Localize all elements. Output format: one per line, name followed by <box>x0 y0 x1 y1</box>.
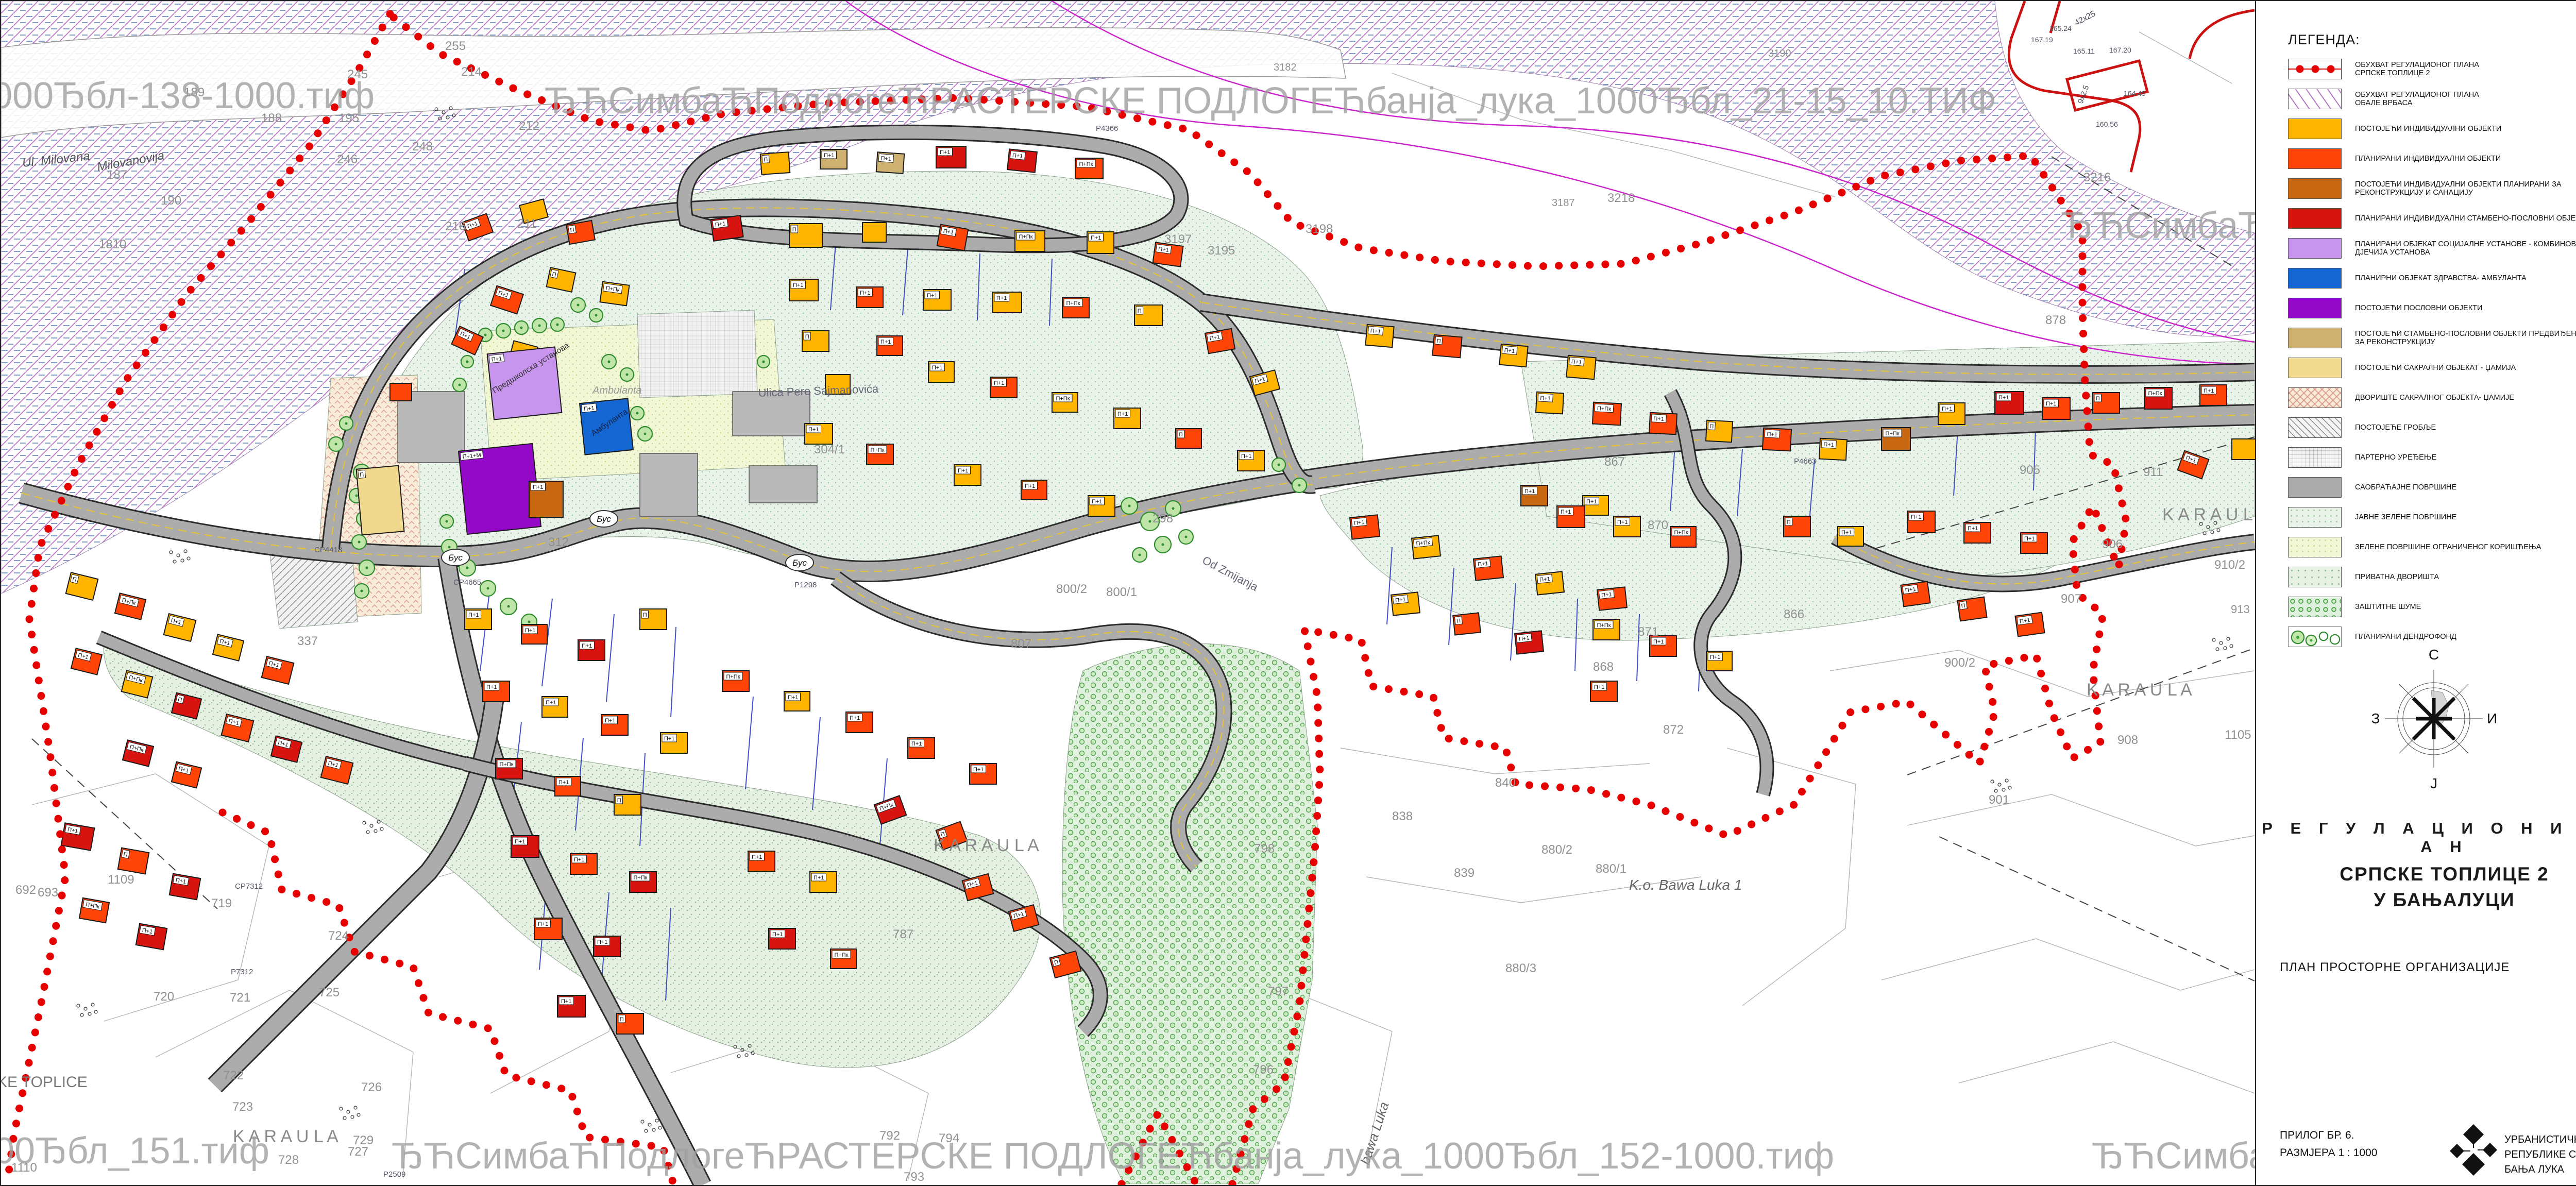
svg-text:П+1: П+1 <box>1942 406 1952 412</box>
svg-text:839: 839 <box>1454 866 1475 880</box>
legend-label: ОБУХВАТ РЕГУЛАЦИОНОГ ПЛАНАСРПСКЕ ТОПЛИЦЕ… <box>2355 61 2479 78</box>
svg-text:П+1: П+1 <box>1504 347 1515 354</box>
building-p: П+Пк <box>1062 297 1089 318</box>
legend-label: ПЛАНИРНИ ОБЈЕКАТ ЗДРАВСТВА- АМБУЛАНТА <box>2355 274 2527 283</box>
org-line3: БАЊА ЛУКА <box>2504 1162 2576 1177</box>
building-e: П+Пк <box>1412 535 1440 558</box>
legend-symbol-parter <box>2288 447 2342 468</box>
building-p: П+1 <box>1557 506 1585 528</box>
svg-text:1810: 1810 <box>99 238 126 251</box>
legend-symbol-business <box>2288 298 2342 318</box>
building-e: П+1 <box>784 691 810 711</box>
svg-text:693: 693 <box>38 886 58 900</box>
svg-text:П+1: П+1 <box>940 149 950 156</box>
svg-text:П+1: П+1 <box>927 293 937 299</box>
legend-label: ПРИВАТНА ДВОРИШТА <box>2355 573 2439 582</box>
svg-text:П+1: П+1 <box>561 998 571 1005</box>
legend-label: ПОСТОЈЕЋИ ПОСЛОВНИ ОБЈЕКТИ <box>2355 304 2482 313</box>
svg-text:3197: 3197 <box>1164 232 1192 246</box>
svg-text:P1298: P1298 <box>794 581 817 589</box>
building-e: П <box>760 152 790 175</box>
legend-label: ПЛАНИРАНИ ДЕНДРОФОНД <box>2355 633 2456 641</box>
svg-text:807: 807 <box>1011 637 1031 651</box>
legend-symbol-grave <box>2288 417 2342 438</box>
svg-text:П: П <box>805 334 809 340</box>
svg-text:П+1: П+1 <box>1968 526 1978 532</box>
building-e: П+1 <box>1114 408 1141 429</box>
svg-text:П: П <box>617 798 621 804</box>
legend-label: ЗЕЛЕНЕ ПОВРШИНЕ ОГРАНИЧЕНОГ КОРИШЋЕЊА <box>2355 543 2541 552</box>
svg-text:П+1: П+1 <box>850 715 860 721</box>
svg-text:298: 298 <box>1153 512 1173 526</box>
legend-symbol-traffic <box>2288 477 2342 498</box>
svg-text:П+1: П+1 <box>1519 635 1530 642</box>
building-e: П+1 <box>993 292 1022 313</box>
building-p: П <box>1784 516 1810 537</box>
building-p: П+1 <box>1650 636 1676 656</box>
legend-symbol-forest <box>2288 597 2342 617</box>
building-e: П+1 <box>1614 516 1640 537</box>
legend-symbol-pale <box>2288 537 2342 557</box>
svg-text:211: 211 <box>517 217 537 231</box>
building-p: П+1 <box>521 624 547 644</box>
svg-text:840: 840 <box>1495 776 1516 790</box>
svg-text:П+Пк: П+Пк <box>499 761 513 768</box>
legend-symbol-dendro <box>2288 626 2342 647</box>
svg-text:216: 216 <box>445 219 466 233</box>
legend-item-7: ПЛАНИРНИ ОБЈЕКАТ ЗДРАВСТВА- АМБУЛАНТА <box>2288 268 2576 289</box>
building-p: П+1 <box>937 225 968 251</box>
svg-text:П+1: П+1 <box>880 339 891 345</box>
svg-text:П: П <box>1179 432 1183 438</box>
svg-text:П+1: П+1 <box>558 780 569 786</box>
building-p: П+1 <box>970 764 996 784</box>
building-p: П+1 <box>1350 515 1380 539</box>
svg-text:П+1: П+1 <box>1586 499 1597 505</box>
svg-text:721: 721 <box>230 991 250 1005</box>
svg-text:167.19: 167.19 <box>2031 36 2053 44</box>
building-p: П <box>1432 335 1462 358</box>
building-p: П+1 <box>555 776 581 796</box>
svg-text:000Ђбл-138-1000.тиф: 000Ђбл-138-1000.тиф <box>1 75 375 116</box>
svg-text:П+Пк: П+Пк <box>1019 234 1032 240</box>
building-b: П+1 <box>710 215 743 241</box>
building-p: П+1 <box>1649 413 1677 435</box>
svg-text:П+1: П+1 <box>1594 684 1604 690</box>
building-b: П+Пк <box>496 758 522 779</box>
svg-text:726: 726 <box>361 1080 382 1094</box>
building-e: П <box>614 794 641 815</box>
svg-text:165.11: 165.11 <box>2073 47 2095 55</box>
svg-text:787: 787 <box>893 927 913 941</box>
svg-text:880/2: 880/2 <box>1541 843 1572 857</box>
building-e: П+1 <box>465 609 492 630</box>
svg-text:П+1: П+1 <box>1395 597 1406 604</box>
svg-text:723: 723 <box>232 1100 253 1114</box>
svg-text:П+1: П+1 <box>525 628 535 634</box>
building-p: П+1 <box>877 336 903 355</box>
svg-text:П+1: П+1 <box>1653 416 1664 422</box>
building-t: П+1 <box>876 152 905 174</box>
svg-text:880/1: 880/1 <box>1596 862 1626 876</box>
legend-symbol-existing <box>2288 118 2342 139</box>
building-e: П+1 <box>1499 344 1528 367</box>
building-p: П <box>566 221 595 244</box>
org-line2: РЕПУБЛИКЕ СРПСКЕ,а.д. <box>2504 1147 2576 1162</box>
svg-text:П+1: П+1 <box>1561 509 1571 515</box>
legend-item-3: ПЛАНИРАНИ ИНДИВИДУАЛНИ ОБЈЕКТИ <box>2288 148 2576 169</box>
svg-text:164.49: 164.49 <box>2124 89 2146 97</box>
svg-text:П+1: П+1 <box>772 931 783 938</box>
svg-text:П+1: П+1 <box>1539 576 1551 583</box>
svg-text:CP7312: CP7312 <box>235 882 263 891</box>
svg-text:871: 871 <box>1638 625 1658 639</box>
building-p: П+1 <box>1590 681 1617 702</box>
plan-sheet: ПП+1П+1П+1П+1П+ПкП+1ПП+1П+ПкП+1П+1П+1ПП+… <box>0 0 2576 1186</box>
svg-text:П+1: П+1 <box>824 153 834 159</box>
legend-item-16: ЗЕЛЕНЕ ПОВРШИНЕ ОГРАНИЧЕНОГ КОРИШЋЕЊА <box>2288 537 2576 557</box>
svg-text:870: 870 <box>1648 518 1668 532</box>
compass-south: J <box>2430 775 2437 791</box>
building-e: П+1 <box>1535 571 1564 595</box>
svg-text:П+1: П+1 <box>546 700 556 706</box>
svg-text:190: 190 <box>161 194 181 208</box>
legend-label: ЗАШТИТНЕ ШУМЕ <box>2355 603 2421 612</box>
building-b: П+1 <box>136 924 167 950</box>
legend-item-0: ОБУХВАТ РЕГУЛАЦИОНОГ ПЛАНАСРПСКЕ ТОПЛИЦЕ… <box>2288 59 2576 79</box>
svg-text:905: 905 <box>2020 463 2040 477</box>
svg-text:П+1: П+1 <box>1478 561 1489 568</box>
building-e: П+1 <box>660 733 687 753</box>
building-p: П+1 <box>1964 522 1991 543</box>
building-p: П+1 <box>2021 533 2047 553</box>
building-e: П <box>802 331 829 351</box>
building-e: П+Пк <box>1593 619 1620 640</box>
building-p: П+1 <box>534 918 562 940</box>
svg-text:798: 798 <box>1254 842 1275 856</box>
svg-text:П: П <box>1138 308 1142 314</box>
building-b: П+1 <box>1007 149 1037 172</box>
building-b: П+1 <box>61 823 95 850</box>
legend-panel: ЛЕГЕНДА: ОБУХВАТ РЕГУЛАЦИОНОГ ПЛАНАСРПСК… <box>2255 1 2576 1186</box>
svg-text:П+1: П+1 <box>605 718 615 724</box>
plan-title-line1: Р Е Г У Л А Ц И О Н И П Л А Н <box>2256 819 2576 856</box>
svg-text:913: 913 <box>2231 603 2250 616</box>
compass-north: С <box>2429 647 2439 663</box>
svg-text:725: 725 <box>319 986 340 999</box>
legend-item-5: ПЛАНИРАНИ ИНДИВИДУАЛНИ СТАМБЕНО-ПОСЛОВНИ… <box>2288 208 2576 229</box>
building-b: П+1 <box>594 936 620 957</box>
svg-text:901: 901 <box>1989 793 2009 807</box>
legend-item-8: ПОСТОЈЕЋИ ПОСЛОВНИ ОБЈЕКТИ <box>2288 298 2576 318</box>
building-b: П+1 <box>511 836 539 857</box>
building-p: П+Пк <box>831 949 856 969</box>
building-e: П+1 <box>954 465 981 485</box>
svg-text:П+1: П+1 <box>2024 536 2035 542</box>
svg-text:П: П <box>1787 519 1791 526</box>
svg-text:212: 212 <box>519 119 539 133</box>
svg-text:CP4665: CP4665 <box>453 578 481 587</box>
svg-text:П+Пк: П+Пк <box>1056 396 1070 402</box>
svg-text:1105: 1105 <box>2225 728 2251 742</box>
svg-text:P7312: P7312 <box>231 968 253 976</box>
svg-text:906: 906 <box>2102 537 2123 551</box>
svg-text:K A R A U L: K A R A U L <box>2162 505 2253 524</box>
plan-title-block: Р Е Г У Л А Ц И О Н И П Л А Н СРПСКЕ ТОП… <box>2256 819 2576 911</box>
svg-text:3218: 3218 <box>1607 191 1635 205</box>
svg-text:П+1: П+1 <box>664 736 674 742</box>
building-e: П+1 <box>1819 438 1847 461</box>
svg-text:П+1: П+1 <box>533 484 543 490</box>
building-p: П <box>1176 429 1201 448</box>
svg-text:П+1: П+1 <box>996 295 1007 301</box>
footer-left: ПРИЛОГ БР. 6. РАЗМЈЕРА 1 : 1000 <box>2280 1127 2377 1162</box>
svg-text:214: 214 <box>461 65 482 79</box>
legend-label: ПОСТОЈЕЋИ ИНДИВИДУАЛНИ ОБЈЕКТИ <box>2355 125 2501 133</box>
svg-text:П+1: П+1 <box>486 684 497 690</box>
svg-text:165.24: 165.24 <box>2049 24 2072 32</box>
svg-text:П+1: П+1 <box>1911 514 1921 520</box>
svg-text:П: П <box>643 612 647 618</box>
building-p: П+1 <box>601 715 628 735</box>
svg-text:П+1: П+1 <box>1710 654 1720 660</box>
legend-item-6: ПЛАНИРАНИ ОБЈЕКАТ СОЦИЈАЛНЕ УСТАНОВЕ - К… <box>2288 238 2576 259</box>
building-p: П+1 <box>1762 428 1791 451</box>
svg-text:Бус: Бус <box>597 514 611 524</box>
svg-text:ЂЋСимбаЋПодлогеЋРАСТЕРСКЕ ПОДЛ: ЂЋСимбаЋПодлогеЋРАСТЕРСКЕ ПОДЛОГЕЋбанја_… <box>545 80 1996 122</box>
svg-text:П+1: П+1 <box>538 921 548 927</box>
svg-text:П+1: П+1 <box>1241 453 1251 460</box>
legend-item-10: ПОСТОЈЕЋИ САКРАЛНИ ОБЈЕКАТ - ЏАМИЈА <box>2288 358 2576 378</box>
org-line1: УРБАНИСТИЧКИ ЗАВОД <box>2504 1132 2576 1147</box>
building-p: П+Пк <box>1592 402 1621 426</box>
legend-label: ПОСТОЈЕЋИ САКРАЛНИ ОБЈЕКАТ - ЏАМИЈА <box>2355 364 2516 372</box>
svg-text:3195: 3195 <box>1208 244 1235 258</box>
legend-item-15: ЈАВНЕ ЗЕЛЕНЕ ПОВРШИНЕ <box>2288 507 2576 528</box>
svg-text:П: П <box>2096 396 2100 402</box>
building-b: П+1 <box>936 146 966 168</box>
svg-text:П+1: П+1 <box>814 875 824 881</box>
building-b: П+1 <box>578 640 605 660</box>
svg-text:П+1: П+1 <box>468 612 479 618</box>
legend-item-18: ЗАШТИТНЕ ШУМЕ <box>2288 597 2576 617</box>
svg-text:П+1: П+1 <box>1540 395 1551 402</box>
svg-text:П+Пк: П+Пк <box>870 447 884 453</box>
svg-text:910/2: 910/2 <box>2214 558 2245 572</box>
svg-text:П+1: П+1 <box>1012 153 1023 160</box>
svg-text:728: 728 <box>278 1153 299 1167</box>
building-e <box>2232 439 2255 460</box>
building-r: П+1 <box>529 481 563 517</box>
footer-organization: УРБАНИСТИЧКИ ЗАВОД РЕПУБЛИКЕ СРПСКЕ,а.д.… <box>2504 1132 2576 1177</box>
svg-text:900/2: 900/2 <box>1944 656 1975 670</box>
legend-symbol-planned <box>2288 148 2342 169</box>
legend-item-11: ДВОРИШТЕ САКРАЛНОГ ОБЈЕКТА- ЏАМИЈЕ <box>2288 387 2576 408</box>
svg-text:П+1: П+1 <box>1841 530 1852 536</box>
svg-text:П+1: П+1 <box>1025 483 1035 489</box>
building-e: П+1 <box>1938 403 1965 425</box>
svg-text:П+1: П+1 <box>1117 411 1128 417</box>
svg-text:692: 692 <box>15 883 36 897</box>
building-m: П <box>357 466 404 535</box>
svg-text:П+1: П+1 <box>911 741 922 747</box>
svg-text:П+Пк: П+Пк <box>633 875 647 881</box>
svg-text:П+Пк: П+Пк <box>1079 161 1093 167</box>
legend-symbol-resbiz <box>2288 208 2342 229</box>
svg-text:П: П <box>792 227 796 233</box>
svg-text:П+1: П+1 <box>1354 519 1365 527</box>
legend-label: ПАРТЕРНО УРЕЂЕЊЕ <box>2355 453 2436 462</box>
legend-symbol-recon <box>2288 178 2342 199</box>
legend-symbol-dots <box>2288 59 2342 79</box>
legend-symbol-mint <box>2288 507 2342 528</box>
building-p: П+1 <box>1021 480 1047 500</box>
svg-text:П+1: П+1 <box>994 380 1004 386</box>
plan-title-line3: У БАЊАЛУЦИ <box>2256 889 2576 911</box>
svg-text:312: 312 <box>548 535 569 549</box>
building-p: П+Пк <box>79 898 109 923</box>
svg-text:П+1: П+1 <box>1653 639 1664 645</box>
legend-list: ОБУХВАТ РЕГУЛАЦИОНОГ ПЛАНАСРПСКЕ ТОПЛИЦЕ… <box>2288 59 2576 656</box>
building-p: П+1 <box>1597 587 1627 610</box>
building-p: П+1 <box>846 712 873 733</box>
svg-text:П+1: П+1 <box>1998 395 2009 401</box>
svg-text:П+1: П+1 <box>1571 359 1582 366</box>
svg-text:719: 719 <box>211 896 232 910</box>
svg-text:П+1: П+1 <box>597 939 607 945</box>
svg-text:П+1: П+1 <box>582 643 592 649</box>
legend-symbol-myard <box>2288 387 2342 408</box>
building-p: П+1 <box>483 681 510 702</box>
svg-text:3182: 3182 <box>1274 62 1297 73</box>
building-e: П <box>640 609 667 630</box>
svg-text:868: 868 <box>1593 660 1614 674</box>
legend-label: ПЛАНИРАНИ ИНДИВИДУАЛНИ ОБЈЕКТИ <box>2355 155 2501 163</box>
svg-text:П: П <box>1709 423 1714 430</box>
svg-text:724: 724 <box>328 929 349 943</box>
svg-text:255: 255 <box>445 39 466 53</box>
svg-text:П+1: П+1 <box>1617 519 1628 526</box>
building-p: П <box>1957 597 1987 621</box>
uzrs-logo <box>2448 1123 2499 1180</box>
svg-text:П+1: П+1 <box>515 839 525 845</box>
svg-text:П+1: П+1 <box>752 854 762 860</box>
building-e: П <box>1134 305 1162 326</box>
svg-text:796: 796 <box>1253 1063 1274 1077</box>
legend-label: ЈАВНЕ ЗЕЛЕНЕ ПОВРШИНЕ <box>2355 513 2456 522</box>
building-p: П+1 <box>570 854 597 874</box>
svg-text:878: 878 <box>2045 313 2066 327</box>
svg-text:800/2: 800/2 <box>1056 582 1087 596</box>
building-b: П+Пк <box>2144 387 2172 409</box>
building-e: П+1 <box>928 362 954 382</box>
compass-rose: С И З J <box>2370 645 2497 792</box>
building-e: П+1 <box>1566 355 1596 380</box>
svg-text:Ambulanta: Ambulanta <box>592 385 642 396</box>
building-e: П+1 <box>1391 592 1420 615</box>
legend-symbol-priv <box>2288 567 2342 587</box>
svg-text:П+1: П+1 <box>932 365 942 371</box>
svg-text:304/1: 304/1 <box>814 443 845 456</box>
building-e: П+Пк <box>1052 393 1078 412</box>
svg-text:П+1: П+1 <box>973 767 984 773</box>
building-e: П+Пк <box>600 282 629 306</box>
legend-symbol-mosque <box>2288 358 2342 378</box>
building-e: П+1 <box>805 423 833 444</box>
svg-text:KE TOPLICE: KE TOPLICE <box>1 1074 88 1091</box>
plan-title-line2: СРПСКЕ ТОПЛИЦЕ 2 <box>2256 863 2576 885</box>
legend-item-9: ПОСТОЈЕЋИ СТАМБЕНО-ПОСЛОВНИ ОБЈЕКТИ ПРЕД… <box>2288 328 2576 348</box>
svg-text:П: П <box>620 1016 624 1023</box>
svg-text:ЂЋСимбаЋПодлогеЋРАСТЕРСКЕ ПОДЛ: ЂЋСимбаЋПодлогеЋРАСТЕРСКЕ ПОДЛОГЕЋбанја_… <box>392 1136 1834 1177</box>
svg-text:337: 337 <box>297 634 318 648</box>
svg-text:П+1: П+1 <box>1524 488 1535 495</box>
svg-text:П: П <box>1456 618 1461 624</box>
building-p: П <box>118 848 149 874</box>
building-e: П+1 <box>1088 496 1115 516</box>
svg-text:П+1: П+1 <box>880 156 891 162</box>
svg-text:П+1: П+1 <box>788 694 798 701</box>
svg-text:П+1: П+1 <box>958 468 968 474</box>
svg-text:908: 908 <box>2117 733 2138 747</box>
building-b: П+Пк <box>630 872 656 892</box>
building-p: П+1 <box>856 287 883 308</box>
compass-west: З <box>2371 710 2380 726</box>
svg-text:911: 911 <box>2143 465 2163 479</box>
legend-label: ПОСТОЈЕЋЕ ГРОБЉЕ <box>2355 423 2436 432</box>
building-e: П+1 <box>1238 450 1264 471</box>
svg-text:П+1: П+1 <box>491 355 502 363</box>
building-e: П <box>1706 420 1733 443</box>
svg-text:П+Пк: П+Пк <box>1597 405 1612 412</box>
building-p: П+1 <box>1473 556 1503 580</box>
svg-text:П+1: П+1 <box>1767 431 1777 438</box>
svg-text:П+1: П+1 <box>2204 388 2214 394</box>
building-p: П+1 <box>2200 385 2227 405</box>
building-b: П+1 <box>1995 392 2024 414</box>
svg-text:ЂЋСимбаЋ: ЂЋСимбаЋ <box>2061 205 2255 246</box>
svg-text:П+Пк: П+Пк <box>726 674 740 680</box>
legend-label: ПОСТОЈЕЋИ СТАМБЕНО-ПОСЛОВНИ ОБЈЕКТИ ПРЕД… <box>2355 330 2576 347</box>
building-p: П+1 <box>2015 613 2044 637</box>
map-canvas: ПП+1П+1П+1П+1П+ПкП+1ПП+1П+ПкП+1П+1П+1ПП+… <box>1 1 2255 1186</box>
legend-label: ПОСТОЈЕЋИ ИНДИВИДУАЛНИ ОБЈЕКТИ ПЛАНИРАНИ… <box>2355 180 2562 197</box>
svg-text:П+1: П+1 <box>1092 499 1102 505</box>
building-p <box>390 383 412 401</box>
building-t: П+1 <box>820 149 847 169</box>
building-p: П+1 <box>908 738 935 758</box>
svg-text:П+1: П+1 <box>860 290 870 296</box>
legend-symbol-health <box>2288 268 2342 289</box>
svg-text:П: П <box>764 157 768 163</box>
building-e: П+1 <box>1087 232 1114 253</box>
building-e: П+1 <box>1365 325 1394 347</box>
legend-label: ПЛАНИРАНИ ОБЈЕКАТ СОЦИЈАЛНЕ УСТАНОВЕ - К… <box>2355 240 2576 257</box>
svg-text:П+Пк: П+Пк <box>1674 530 1688 536</box>
svg-text:3198: 3198 <box>1306 222 1333 236</box>
building-e: П+1 <box>923 290 951 310</box>
building-r: П+Пк <box>1882 428 1910 450</box>
svg-text:K A R A U L A: K A R A U L A <box>934 836 1039 855</box>
legend-item-4: ПОСТОЈЕЋИ ИНДИВИДУАЛНИ ОБЈЕКТИ ПЛАНИРАНИ… <box>2288 178 2576 199</box>
svg-text:П+Пк: П+Пк <box>2148 391 2162 397</box>
svg-text:П+Пк: П+Пк <box>1066 300 1080 307</box>
building-e: П+Пк <box>1015 231 1045 251</box>
building-e: П+1 <box>542 697 568 717</box>
building-e: П+1 <box>1706 651 1732 671</box>
building-p: П+Пк <box>867 444 893 465</box>
building-p: П+1 <box>1907 511 1935 533</box>
